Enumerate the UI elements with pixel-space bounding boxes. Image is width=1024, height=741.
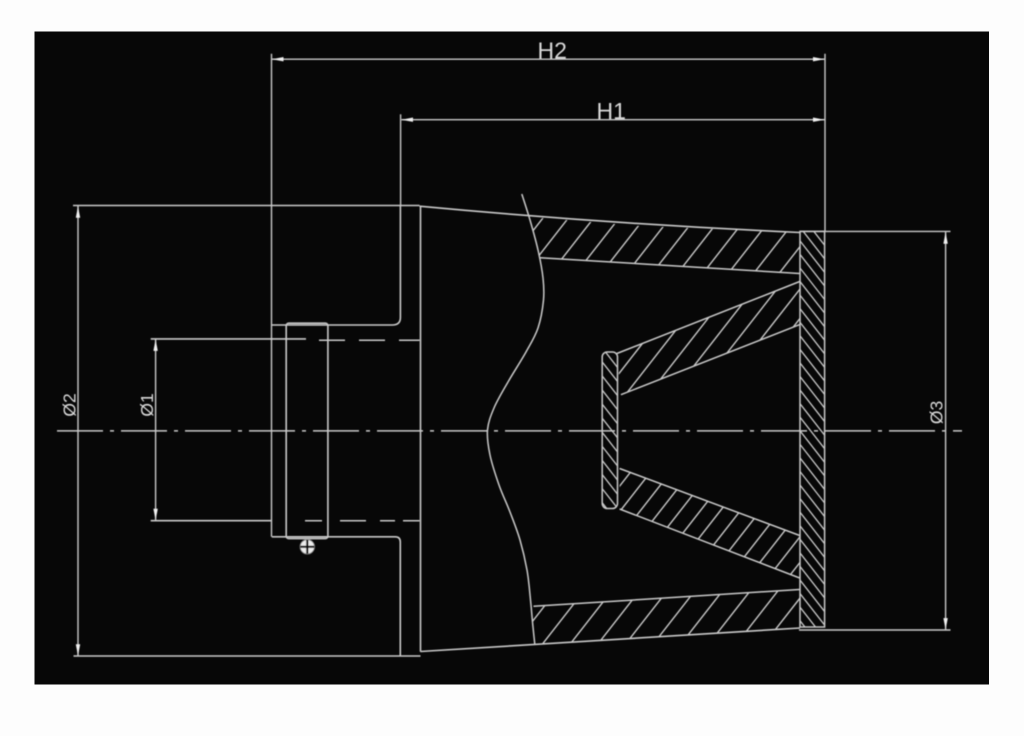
svg-text:H1: H1 — [597, 98, 626, 124]
svg-text:H2: H2 — [538, 38, 567, 64]
svg-text:Ø3: Ø3 — [927, 401, 947, 424]
svg-text:Ø1: Ø1 — [137, 393, 157, 416]
svg-text:Ø2: Ø2 — [60, 393, 80, 416]
